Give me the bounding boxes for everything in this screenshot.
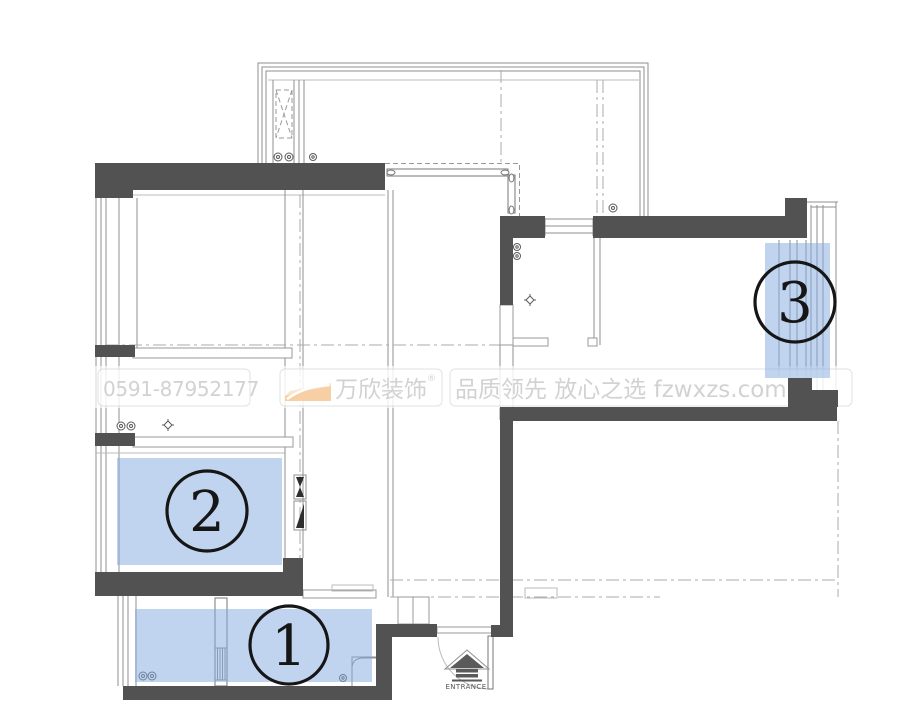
- sliding-door-balcony: [387, 169, 515, 214]
- region-highlight-1: [135, 609, 372, 682]
- registered-mark: ®: [427, 374, 436, 384]
- washing-machine-icon: [276, 90, 292, 138]
- region-1-label: 1: [271, 614, 307, 679]
- entrance-label: ENTRANCE: [445, 683, 486, 691]
- watermark-slogan: 品质领先 放心之选 fzwxzs.com: [455, 377, 787, 403]
- compass-icon: [162, 294, 536, 431]
- watermark-phone: 0591-87952177: [103, 377, 259, 401]
- entrance-arrow-icon: [445, 650, 489, 682]
- floor-plan-drawing: ENTRANCE 0591-87952177 万欣装饰 ® 品质领先 放心之选 …: [0, 0, 900, 720]
- drain-icon: [274, 153, 317, 161]
- watermark-brand: 万欣装饰: [335, 377, 427, 403]
- balcony: [258, 63, 648, 216]
- region-3-label: 3: [777, 271, 813, 336]
- region-highlights: [117, 243, 830, 682]
- region-2-label: 2: [189, 480, 225, 545]
- floor-plan-page: ENTRANCE 0591-87952177 万欣装饰 ® 品质领先 放心之选 …: [0, 0, 900, 720]
